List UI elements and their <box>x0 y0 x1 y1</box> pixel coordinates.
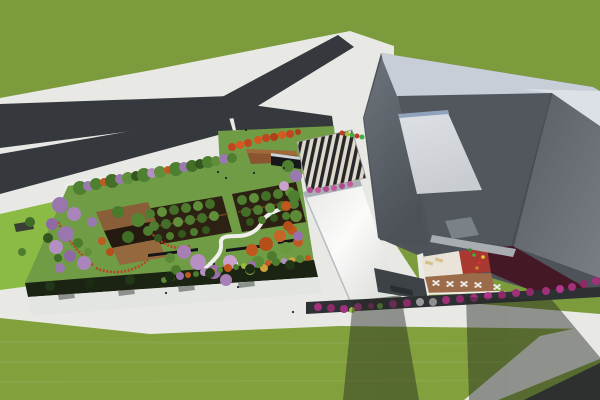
aerial-3d-render <box>0 0 600 400</box>
table-chair <box>498 288 500 290</box>
tree-canopy <box>254 136 262 144</box>
tree-canopy <box>177 245 191 259</box>
person <box>292 311 294 313</box>
tree-canopy <box>237 195 247 205</box>
shrub <box>314 303 322 311</box>
table-chair <box>465 281 467 283</box>
table-chair <box>474 286 476 288</box>
tree-canopy <box>161 219 171 229</box>
tree-canopy <box>253 205 263 215</box>
tree-canopy <box>52 197 68 213</box>
tree-canopy <box>43 233 53 243</box>
shrub <box>498 291 506 299</box>
table-chair <box>493 284 495 286</box>
tree-canopy <box>295 129 301 135</box>
shrub <box>416 298 424 306</box>
table-chair <box>474 282 476 284</box>
table-chair <box>460 281 462 283</box>
tree-canopy <box>25 217 35 227</box>
play-item <box>475 266 479 270</box>
table-chair <box>432 280 434 282</box>
tree-canopy <box>190 254 206 270</box>
shrub <box>350 133 355 138</box>
tree-canopy <box>77 256 91 270</box>
table-chair <box>437 280 439 282</box>
tree-canopy <box>165 272 175 282</box>
tree-canopy <box>265 260 271 266</box>
shrub <box>442 296 450 304</box>
table-chair <box>446 281 448 283</box>
tree-canopy <box>154 234 162 242</box>
tree-canopy <box>241 207 251 217</box>
tree-canopy <box>197 213 207 223</box>
tree-canopy <box>246 244 258 256</box>
tree-canopy <box>281 201 291 211</box>
tree-canopy <box>270 214 278 222</box>
shrub <box>526 288 534 296</box>
tree-canopy <box>249 193 259 203</box>
tree-canopy <box>272 258 280 266</box>
tree-canopy <box>202 226 210 234</box>
shrub <box>360 135 365 140</box>
tree-canopy <box>154 166 166 178</box>
person <box>311 160 313 162</box>
play-item <box>477 261 481 265</box>
tree-canopy <box>87 217 97 227</box>
table-chair <box>432 284 434 286</box>
tree-canopy <box>85 278 95 288</box>
table-chair <box>437 284 439 286</box>
tree-canopy <box>228 143 236 151</box>
shrub <box>345 132 350 137</box>
tree-canopy <box>305 255 311 261</box>
table-chair <box>460 285 462 287</box>
table-chair <box>451 285 453 287</box>
tree-canopy <box>282 160 294 172</box>
tree-canopy <box>181 203 191 213</box>
tree-canopy <box>293 231 303 241</box>
person <box>283 167 285 169</box>
shrub <box>456 295 464 303</box>
tree-canopy <box>280 242 292 254</box>
table-chair <box>446 285 448 287</box>
tree-canopy <box>278 131 286 139</box>
tree-canopy <box>259 237 273 251</box>
tree-canopy <box>279 181 289 191</box>
tree-canopy <box>64 250 76 262</box>
tree-canopy <box>224 264 232 272</box>
tree-canopy <box>217 267 223 273</box>
shrub <box>331 185 337 191</box>
tree-canopy <box>288 190 300 202</box>
tree-canopy <box>122 231 134 243</box>
table-chair <box>479 282 481 284</box>
tree-canopy <box>286 130 294 138</box>
tree-canopy <box>290 210 302 222</box>
tree-canopy <box>262 134 270 142</box>
tree-canopy <box>270 133 278 141</box>
shrub <box>315 187 321 193</box>
tree-canopy <box>145 209 155 219</box>
tree-canopy <box>205 268 215 278</box>
table-chair <box>493 288 495 290</box>
shrub <box>429 298 437 306</box>
shrub <box>327 304 335 312</box>
tree-canopy <box>265 203 275 213</box>
table-chair <box>465 285 467 287</box>
table-chair <box>498 284 500 286</box>
play-item <box>472 253 476 257</box>
shrub <box>580 280 588 288</box>
tree-canopy <box>233 264 239 270</box>
table-chair <box>476 283 479 286</box>
shrub <box>568 283 576 291</box>
shrub <box>355 134 360 139</box>
tree-canopy <box>49 240 63 254</box>
tree-canopy <box>131 213 145 227</box>
tree-canopy <box>98 237 106 245</box>
tree-canopy <box>55 263 65 273</box>
shrub <box>592 277 600 285</box>
tree-canopy <box>190 228 198 236</box>
tree-canopy <box>185 215 195 225</box>
shrub <box>340 131 345 136</box>
tree-canopy <box>257 261 263 267</box>
tree-canopy <box>193 271 199 277</box>
tree-canopy <box>185 272 191 278</box>
person <box>213 263 215 265</box>
tree-canopy <box>45 281 55 291</box>
tree-canopy <box>246 218 254 226</box>
tree-canopy <box>193 201 203 211</box>
aerial-render-stage <box>0 0 600 400</box>
tree-canopy <box>283 221 293 231</box>
tree-canopy <box>244 139 252 147</box>
person <box>217 171 219 173</box>
shrub <box>542 287 550 295</box>
person <box>225 177 227 179</box>
play-item <box>481 255 485 259</box>
table-chair <box>448 282 451 285</box>
shrub <box>339 183 345 189</box>
tree-canopy <box>166 232 174 240</box>
tree-canopy <box>273 189 283 199</box>
table-chair <box>479 286 481 288</box>
person <box>165 292 167 294</box>
tree-canopy <box>245 264 255 274</box>
tree-canopy <box>220 274 232 286</box>
tree-canopy <box>296 255 304 263</box>
tree-canopy <box>18 248 26 256</box>
tree-canopy <box>125 275 135 285</box>
shrub <box>403 299 411 307</box>
person <box>237 286 239 288</box>
tree-canopy <box>236 141 244 149</box>
tree-canopy <box>73 238 83 248</box>
tree-canopy <box>90 178 102 190</box>
tree-canopy <box>112 206 124 218</box>
tree-canopy <box>46 218 58 230</box>
play-item <box>468 248 472 252</box>
shrub <box>323 186 329 192</box>
tree-canopy <box>173 217 183 227</box>
table-chair <box>434 281 437 284</box>
person <box>245 129 247 131</box>
tree-canopy <box>274 230 286 242</box>
table-chair <box>451 281 453 283</box>
tree-canopy <box>205 199 215 209</box>
shrub <box>556 285 564 293</box>
shrub <box>340 305 348 313</box>
tree-canopy <box>84 248 92 256</box>
tree-canopy <box>290 170 302 182</box>
tree-canopy <box>149 221 159 231</box>
tree-canopy <box>227 153 237 163</box>
tree-canopy <box>258 216 266 224</box>
tree-canopy <box>54 254 62 262</box>
tree-canopy <box>285 260 295 270</box>
tree-canopy <box>106 248 114 256</box>
tree-canopy <box>261 191 271 201</box>
tree-canopy <box>282 212 290 220</box>
table-chair <box>495 285 498 288</box>
tree-canopy <box>67 207 81 221</box>
tree-canopy <box>165 253 175 263</box>
tree-canopy <box>58 226 74 242</box>
tree-canopy <box>178 230 186 238</box>
tree-canopy <box>209 211 219 221</box>
shrub <box>347 181 353 187</box>
table-chair <box>462 282 465 285</box>
person <box>253 172 255 174</box>
tree-canopy <box>176 272 184 280</box>
tree-canopy <box>157 207 167 217</box>
shrub <box>512 289 520 297</box>
tree-canopy <box>169 205 179 215</box>
shrub <box>307 187 313 193</box>
